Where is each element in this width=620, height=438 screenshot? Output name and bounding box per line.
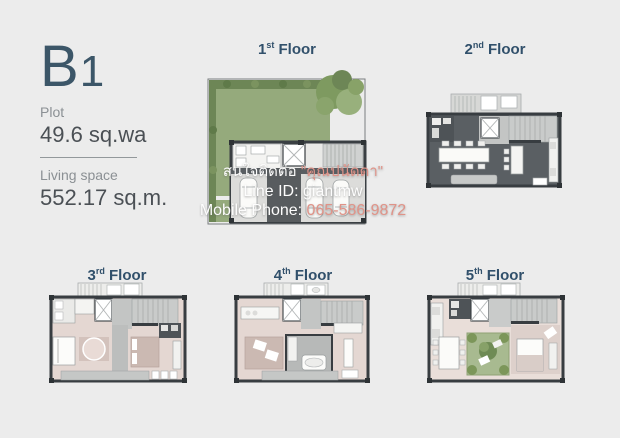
desk [241,307,279,319]
floor-2-word: Floor [488,41,526,58]
floor-plan-5 [423,281,573,387]
floor-plan-4 [228,281,378,387]
floor-1-ordinal: st [266,40,274,50]
dining-table [433,337,465,369]
elevator [95,299,112,321]
stairs [321,301,363,326]
watermark-line-id: Line ID: giantmw [168,182,438,201]
building-fifth-floor [427,295,565,383]
building-third-floor [49,295,187,383]
courtyard [467,333,509,375]
floorplan-brochure-page: B1 Plot 49.6 sq.wa Living space 552.17 s… [0,0,620,438]
floor-1-word: Floor [279,41,317,58]
kitchen-counter [549,138,558,182]
floor-plan-2 [423,88,568,200]
utility-room [449,299,471,319]
watermark-contact-prefix: สนใจติดต่อ [223,163,301,180]
bed [53,337,75,365]
ac-ledge [264,283,328,297]
bedroom [511,325,560,374]
balcony [262,371,338,380]
plot-label: Plot [40,104,190,120]
floor-4-ordinal: th [282,266,291,276]
ac-ledge [458,283,520,297]
hallway [301,299,321,329]
bathtub [302,355,326,370]
floor-1-title: 1st Floor [227,40,347,58]
watermark-contact-name: "คุณปนัดดา" [301,163,383,180]
stairs [132,299,178,326]
unit-model-digit: 1 [80,47,105,96]
watermark-phone-number: 065-586-9872 [307,202,407,219]
round-rug [83,338,105,360]
contact-watermark: สนใจติดต่อ "คุณปนัดดา" Line ID: giantmw … [168,162,438,220]
hallway [489,299,511,327]
unit-model-title: B1 [40,38,190,96]
bed [131,337,159,367]
floor-5-ordinal: th [474,266,483,276]
floor-3-ordinal: rd [96,266,105,276]
watermark-phone-line: Mobile Phone: 065-586-9872 [168,201,438,220]
floor-2-number: 2 [464,41,472,58]
ac-ledge [78,283,142,297]
unit-model-letter: B [40,34,80,99]
floor-2-title: 2nd Floor [435,40,555,58]
bed [245,337,283,369]
divider-line [40,157,137,158]
ac-units [152,371,177,379]
elevator [481,118,499,138]
pantry [430,116,454,142]
elevator [283,299,301,321]
kitchen-island [504,146,523,174]
floor-2-ordinal: nd [473,40,484,50]
stairs [511,299,557,324]
tree-icon [316,70,364,115]
elevator [471,299,489,321]
floor-plan-3 [45,281,195,387]
wardrobe [159,323,181,338]
balcony [61,371,149,380]
watermark-contact-line: สนใจติดต่อ "คุณปนัดดา" [168,162,438,182]
building-fourth-floor [234,295,370,383]
building-second-floor [426,112,562,188]
bathroom [286,335,332,373]
balcony-small [533,178,547,185]
sofa [451,175,497,184]
balcony [451,94,521,114]
hallway [112,325,128,373]
watermark-phone-label: Mobile Phone: [200,202,307,219]
plot-value: 49.6 sq.wa [40,122,190,148]
bed [517,339,543,371]
